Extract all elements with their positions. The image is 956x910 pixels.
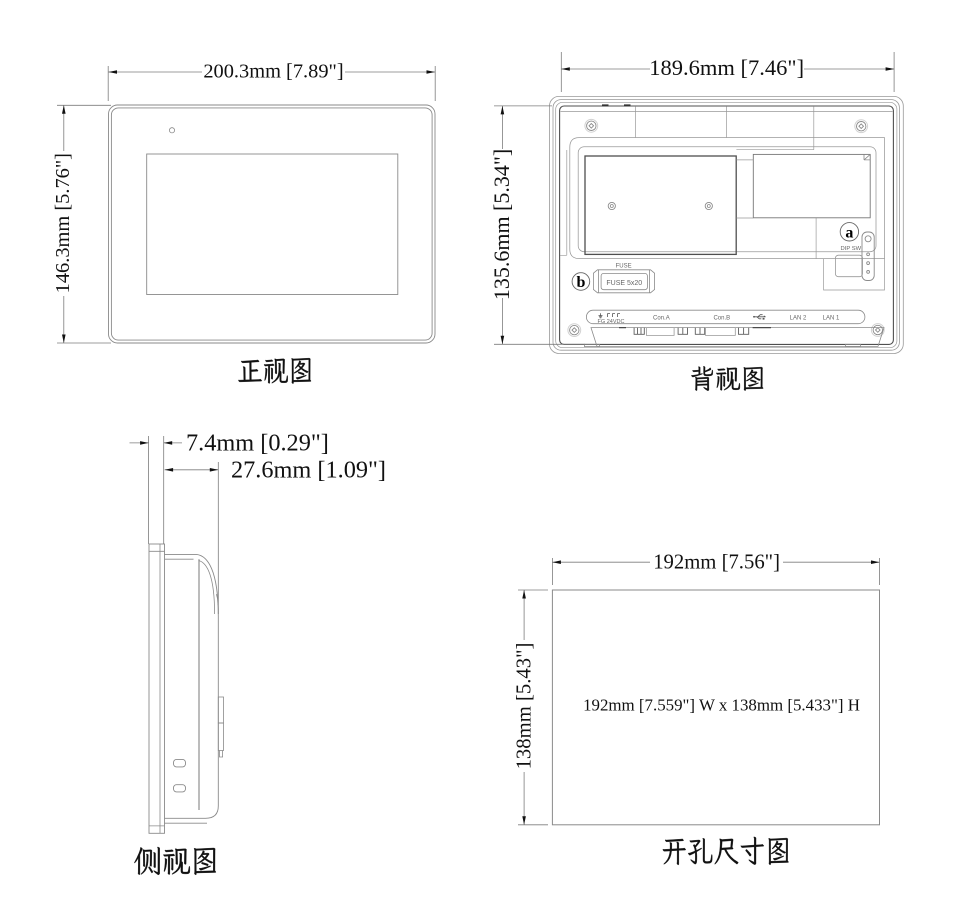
svg-text:b: b bbox=[576, 274, 585, 291]
svg-text:135.6mm [5.34"]: 135.6mm [5.34"] bbox=[489, 149, 514, 300]
svg-text:192mm [7.559"] W x 138mm [5.43: 192mm [7.559"] W x 138mm [5.433"] H bbox=[583, 696, 860, 715]
svg-text:LAN 1: LAN 1 bbox=[823, 315, 840, 321]
svg-text:146.3mm [5.76"]: 146.3mm [5.76"] bbox=[52, 153, 74, 293]
svg-text:27.6mm [1.09"]: 27.6mm [1.09"] bbox=[231, 457, 386, 484]
svg-text:Con.A: Con.A bbox=[653, 315, 670, 321]
svg-text:189.6mm [7.46"]: 189.6mm [7.46"] bbox=[649, 55, 804, 80]
svg-text:Con.B: Con.B bbox=[713, 315, 730, 321]
svg-text:LAN 2: LAN 2 bbox=[790, 315, 807, 321]
svg-text:a: a bbox=[845, 224, 853, 241]
svg-text:FUSE: FUSE bbox=[616, 264, 632, 270]
svg-text:FUSE 5x20: FUSE 5x20 bbox=[606, 280, 642, 287]
svg-text:DIP SW: DIP SW bbox=[841, 246, 862, 252]
svg-text:138mm [5.43"]: 138mm [5.43"] bbox=[513, 643, 535, 770]
svg-text:7.4mm [0.29"]: 7.4mm [0.29"] bbox=[186, 430, 329, 457]
svg-text:192mm [7.56"]: 192mm [7.56"] bbox=[653, 552, 780, 574]
svg-text:FG 24VDC: FG 24VDC bbox=[598, 319, 625, 325]
svg-text:200.3mm [7.89"]: 200.3mm [7.89"] bbox=[203, 60, 343, 82]
